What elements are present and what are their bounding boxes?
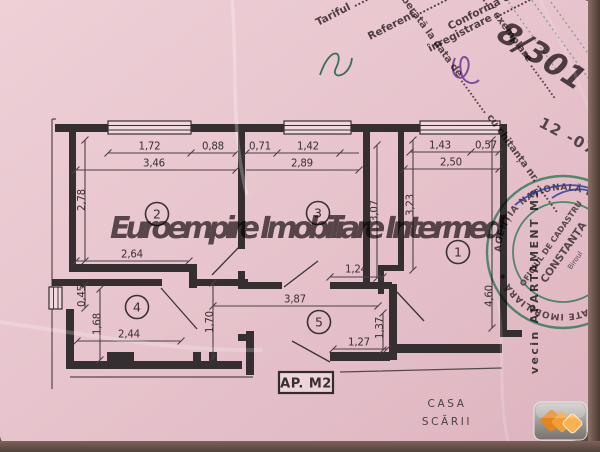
dim-room2-height: 2,78 [77,189,88,211]
room5-number: 5 [315,315,323,330]
room1-number: 1 [454,245,462,260]
dim-room4-height: 1,68 [93,313,104,335]
logo-gloss [536,404,585,418]
dim-hallway-entry-height: 1,37 [375,317,386,339]
viewer-logo [534,402,587,440]
dim-room1-height-right: 4,60 [485,285,496,307]
floor-plan-document: 1,72 0,88 3,46 2,78 0,71 1,42 2,89 3,07 … [0,0,600,452]
dim-room1-segment1: 1,43 [429,141,451,152]
dim-room3-segment1: 0,71 [249,142,271,153]
scan-edge-right [588,0,600,452]
window-room2 [108,121,191,134]
dim-room1-segment2: 0,57 [475,141,497,152]
dim-hallway-entry-width: 1,27 [348,338,370,349]
dim-hallway-width: 3,87 [284,295,306,306]
dim-room4-side-window: 0,45 [77,285,88,307]
dim-hallway-height: 1,70 [205,311,216,333]
staircase-label-line1: CASA [428,398,467,410]
window-room3 [284,121,351,134]
staircase-label-line2: SCĂRII [422,415,472,428]
apartment-label-box: AP. M2 [279,372,333,393]
dim-hallway-niche: 1,24 [345,265,367,276]
scanned-floor-plan-photo: 1,72 0,88 3,46 2,78 0,71 1,42 2,89 3,07 … [0,0,600,452]
scan-edge-bottom [0,441,600,452]
dim-room1-width: 2,50 [440,158,462,169]
window-room4-side [49,287,62,309]
dim-room2-width: 3,46 [143,159,165,170]
dim-room2-segment1: 1,72 [139,142,161,153]
dim-room2-bottom-wall: 2,64 [121,250,143,261]
agency-watermark: Euroempire Imobiliare Intermed [110,211,506,246]
dim-room3-width: 2,89 [291,159,313,170]
dim-room3-segment2: 1,42 [297,142,319,153]
dim-room2-segment2: 0,88 [202,142,224,153]
room4-number: 4 [133,300,141,315]
apartment-label: AP. M2 [280,377,332,392]
